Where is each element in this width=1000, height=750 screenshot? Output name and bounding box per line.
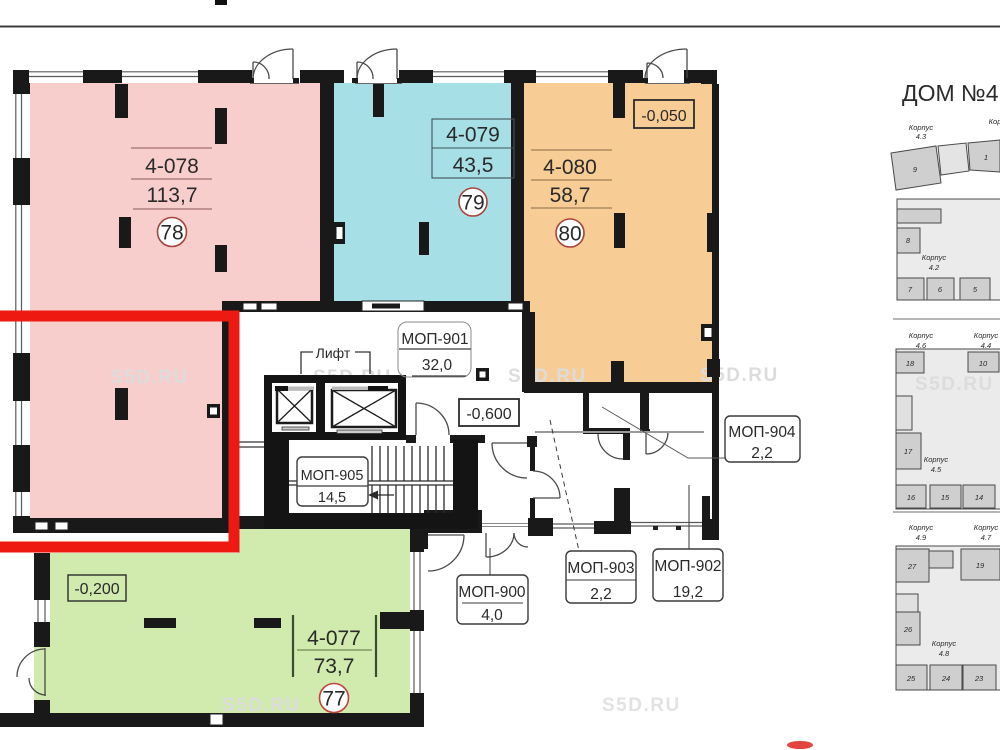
svg-text:80: 80	[558, 223, 581, 246]
svg-text:МОП-900: МОП-900	[458, 584, 526, 601]
svg-text:2,2: 2,2	[751, 445, 773, 462]
svg-text:Корпус: Корпус	[974, 331, 999, 340]
svg-text:73,7: 73,7	[314, 655, 355, 678]
svg-text:1: 1	[984, 153, 988, 162]
svg-text:19: 19	[976, 561, 985, 570]
svg-text:78: 78	[160, 222, 183, 245]
svg-text:4-080: 4-080	[543, 156, 597, 179]
svg-text:S5D.RU: S5D.RU	[915, 374, 994, 395]
svg-text:19,2: 19,2	[673, 584, 703, 601]
svg-text:4.9: 4.9	[916, 533, 927, 542]
svg-text:S5D.RU: S5D.RU	[222, 695, 301, 716]
svg-text:58,7: 58,7	[550, 184, 591, 207]
svg-text:Лифт: Лифт	[316, 345, 351, 361]
svg-text:Корпус: Корпус	[909, 331, 934, 340]
svg-text:S5D.RU: S5D.RU	[602, 695, 681, 716]
svg-text:ДОМ №4: ДОМ №4	[902, 80, 999, 106]
svg-text:25: 25	[906, 674, 916, 683]
svg-text:4-079: 4-079	[446, 124, 500, 147]
svg-text:79: 79	[461, 192, 484, 215]
svg-text:26: 26	[903, 625, 913, 634]
svg-text:-0,200: -0,200	[74, 581, 119, 598]
svg-text:МОП-905: МОП-905	[301, 468, 364, 484]
svg-text:Корпус: Корпус	[924, 455, 949, 464]
svg-text:17: 17	[904, 447, 913, 456]
svg-text:77: 77	[322, 688, 345, 711]
svg-text:4.5: 4.5	[931, 465, 942, 474]
svg-text:Корпус: Корпус	[932, 639, 957, 648]
svg-text:4,0: 4,0	[481, 607, 503, 624]
svg-text:18: 18	[906, 359, 915, 368]
svg-text:МОП-901: МОП-901	[401, 331, 468, 348]
svg-text:-0,600: -0,600	[466, 406, 511, 423]
svg-text:32,0: 32,0	[422, 357, 453, 374]
svg-text:24: 24	[941, 674, 950, 683]
svg-text:-0,050: -0,050	[641, 108, 686, 125]
svg-text:4.8: 4.8	[939, 649, 950, 658]
svg-text:Корпус: Корпус	[909, 523, 934, 532]
svg-text:Кор: Кор	[989, 117, 1000, 126]
svg-text:15: 15	[941, 493, 950, 502]
svg-text:113,7: 113,7	[147, 184, 198, 207]
svg-text:4.7: 4.7	[981, 533, 992, 542]
svg-text:Корпус: Корпус	[909, 123, 934, 132]
svg-text:14: 14	[975, 493, 983, 502]
svg-text:МОП-902: МОП-902	[654, 558, 721, 575]
svg-text:S5D.RU: S5D.RU	[110, 367, 189, 388]
svg-text:14,5: 14,5	[318, 490, 346, 506]
svg-text:16: 16	[907, 493, 916, 502]
svg-text:Корпус: Корпус	[922, 253, 947, 262]
svg-text:МОП-903: МОП-903	[567, 560, 634, 577]
svg-text:23: 23	[974, 674, 984, 683]
svg-text:27: 27	[907, 562, 917, 571]
svg-text:4.2: 4.2	[929, 263, 940, 272]
svg-text:4.3: 4.3	[916, 132, 927, 141]
svg-text:4-078: 4-078	[145, 155, 199, 178]
svg-text:43,5: 43,5	[453, 154, 494, 177]
svg-text:4-077: 4-077	[307, 627, 361, 650]
svg-text:10: 10	[979, 359, 988, 368]
svg-text:2,2: 2,2	[590, 586, 612, 603]
svg-text:МОП-904: МОП-904	[728, 424, 796, 441]
svg-text:Корпус: Корпус	[974, 523, 999, 532]
